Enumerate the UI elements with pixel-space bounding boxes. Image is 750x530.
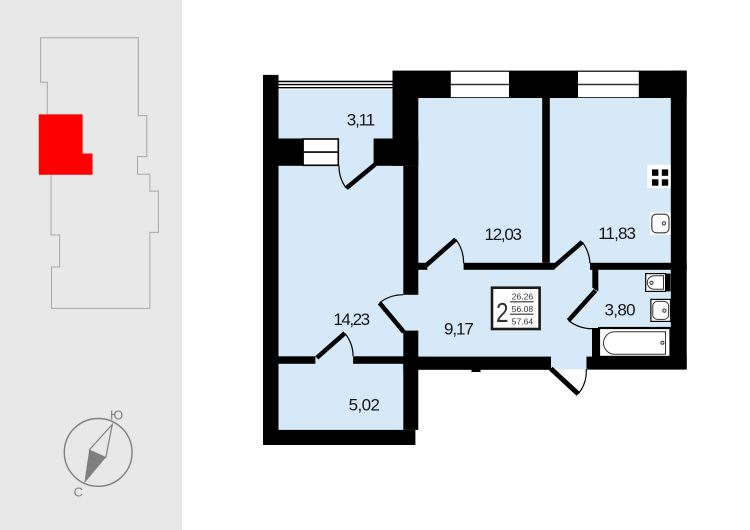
svg-text:14,23: 14,23	[333, 310, 370, 329]
svg-text:11,83: 11,83	[598, 224, 636, 243]
svg-text:12,03: 12,03	[485, 225, 523, 244]
svg-text:56.08: 56.08	[512, 304, 534, 314]
svg-text:2: 2	[496, 297, 509, 328]
svg-text:26.26: 26.26	[512, 292, 534, 302]
svg-text:С: С	[74, 485, 83, 500]
svg-text:57.64: 57.64	[512, 316, 534, 326]
svg-text:Ю: Ю	[110, 408, 123, 423]
svg-text:9,17: 9,17	[444, 320, 474, 339]
svg-text:3,11: 3,11	[347, 111, 375, 130]
svg-text:3,80: 3,80	[605, 301, 636, 320]
svg-text:5,02: 5,02	[349, 396, 380, 415]
